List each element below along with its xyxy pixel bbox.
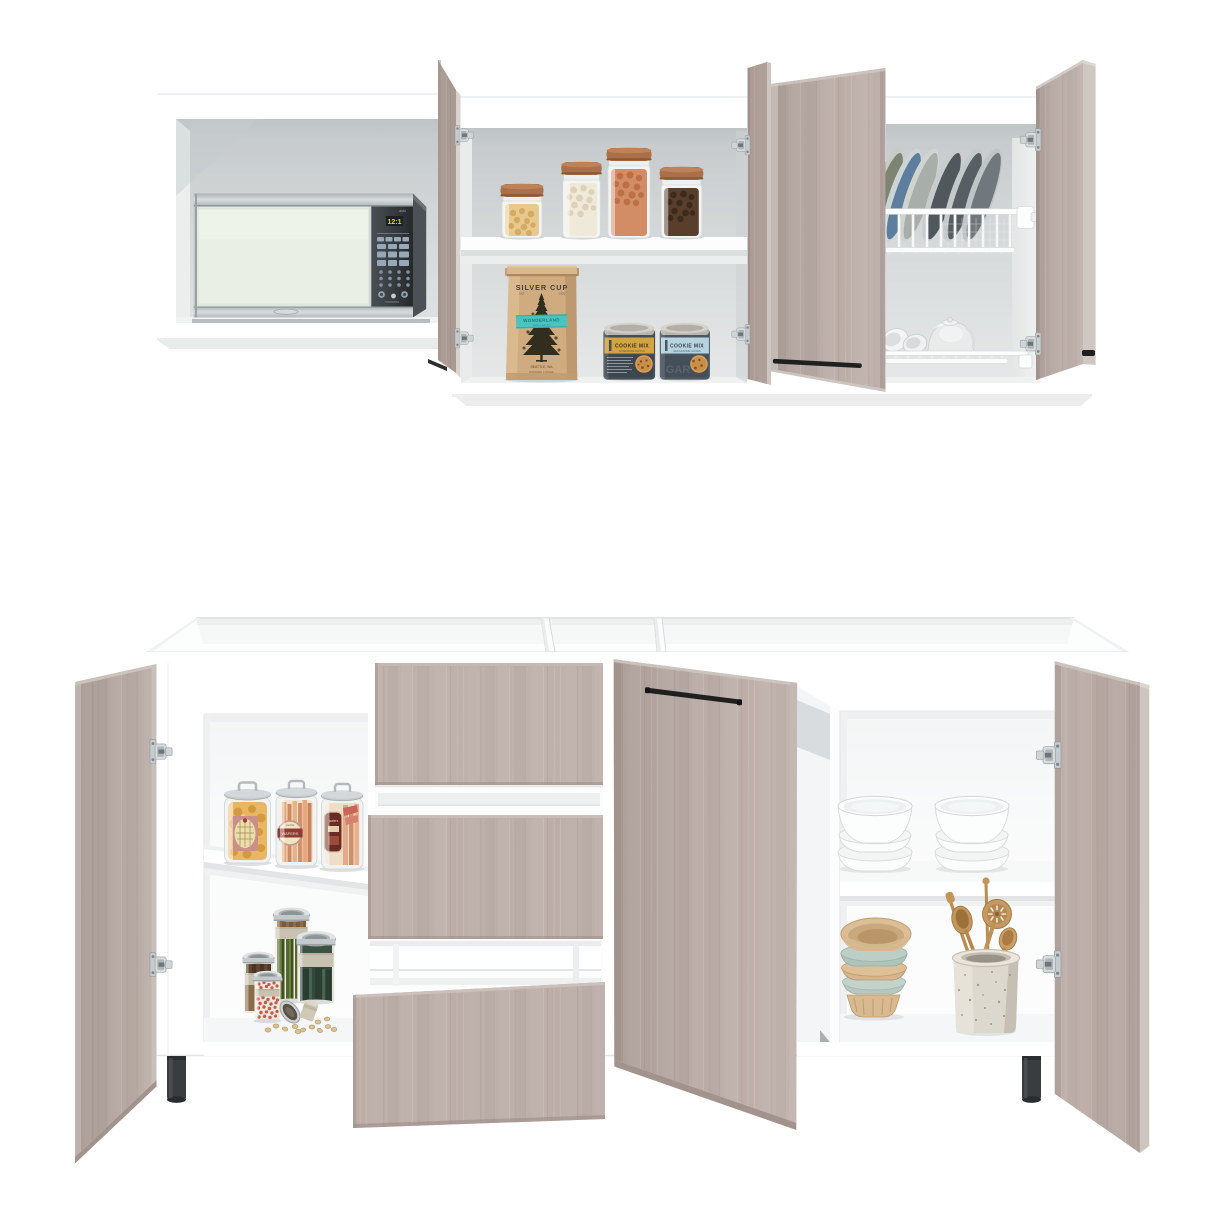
svg-text:COOKIE MIX: COOKIE MIX [670,344,704,350]
svg-text:HOMEMADE BAKING: HOMEMADE BAKING [619,349,645,353]
svg-text:SMALL BATCH: SMALL BATCH [533,323,551,327]
svg-text:WONDERLAND: WONDERLAND [523,317,560,323]
svg-text:GAR: GAR [666,364,691,376]
svg-text:vanilla: vanilla [286,823,295,827]
svg-text:ROASTED COFFEE: ROASTED COFFEE [529,370,554,374]
svg-text:WHOLESOME GOODS: WHOLESOME GOODS [673,349,701,353]
svg-text:SEATTLE, WA: SEATTLE, WA [530,365,553,369]
svg-text:COOKIE MIX: COOKIE MIX [615,344,649,350]
svg-text:wafers: wafers [329,819,339,823]
svg-text:1935: 1935 [559,292,566,296]
svg-text:12:1: 12:1 [387,219,401,226]
svg-text:auto: auto [399,209,406,213]
svg-text:EST: EST [519,292,525,296]
